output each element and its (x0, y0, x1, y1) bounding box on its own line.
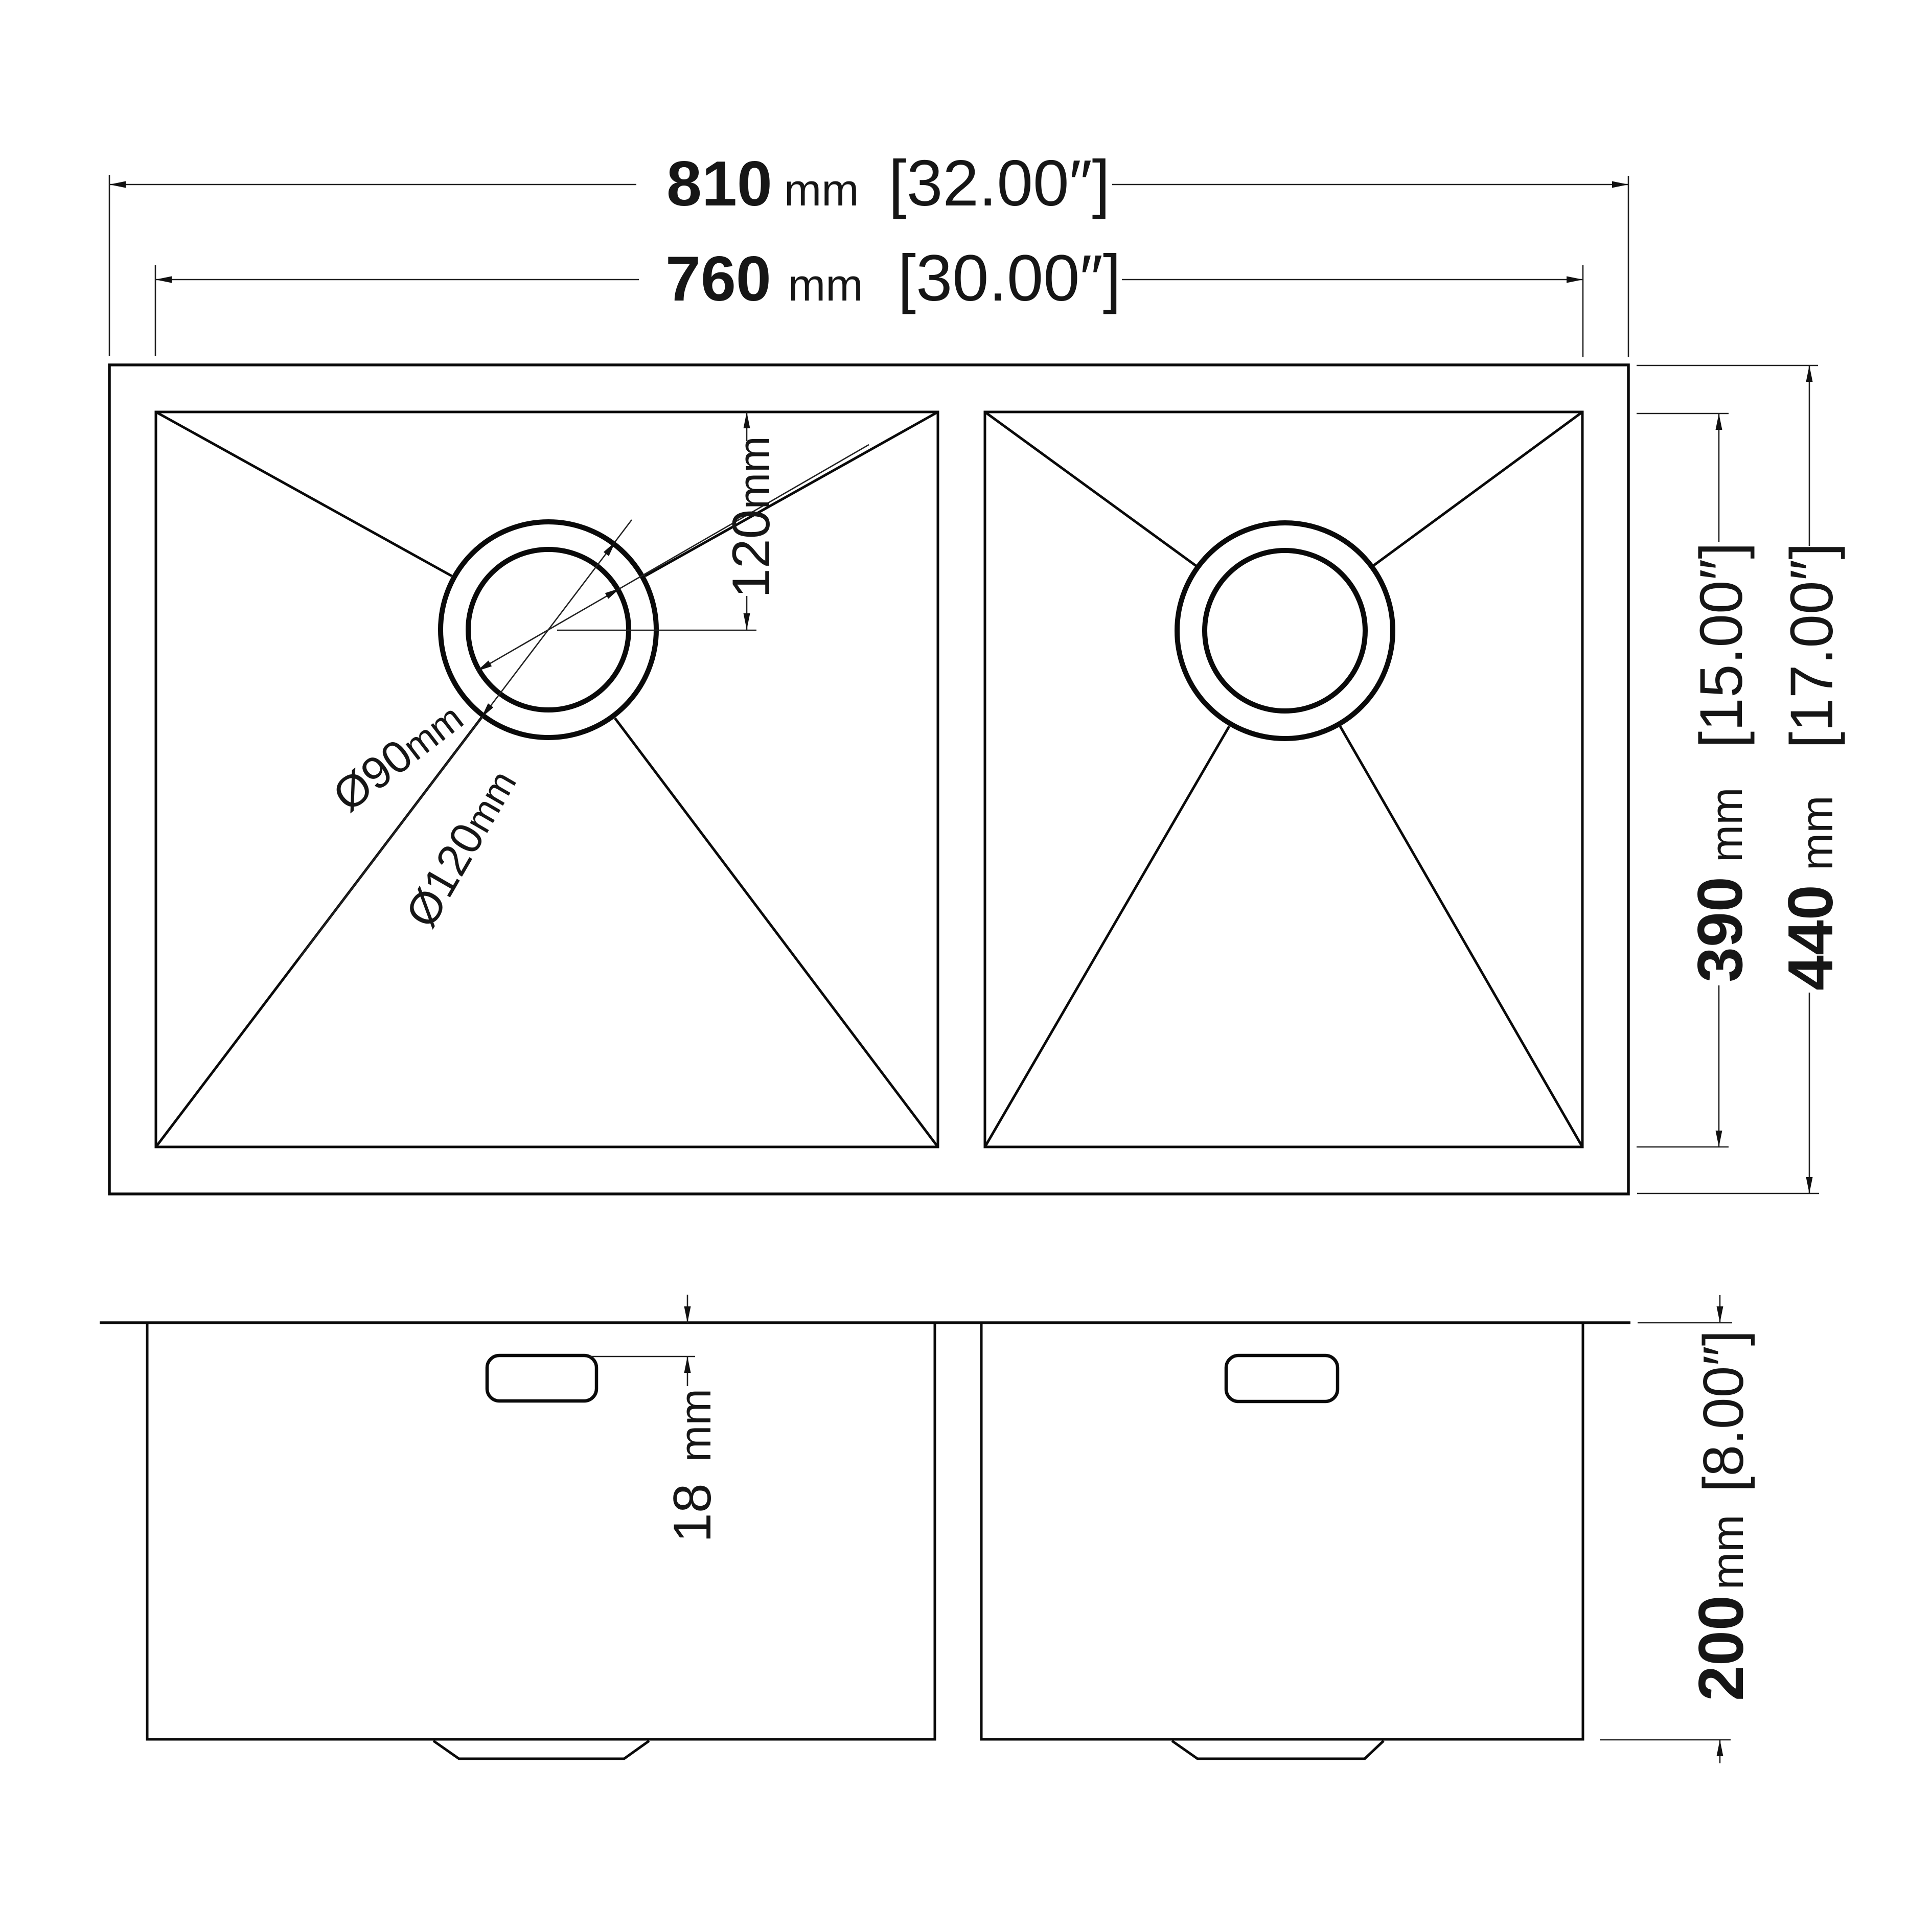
svg-text:120mm: 120mm (722, 436, 781, 598)
svg-text:810mm[32.00″]: 810mm[32.00″] (666, 147, 1110, 219)
